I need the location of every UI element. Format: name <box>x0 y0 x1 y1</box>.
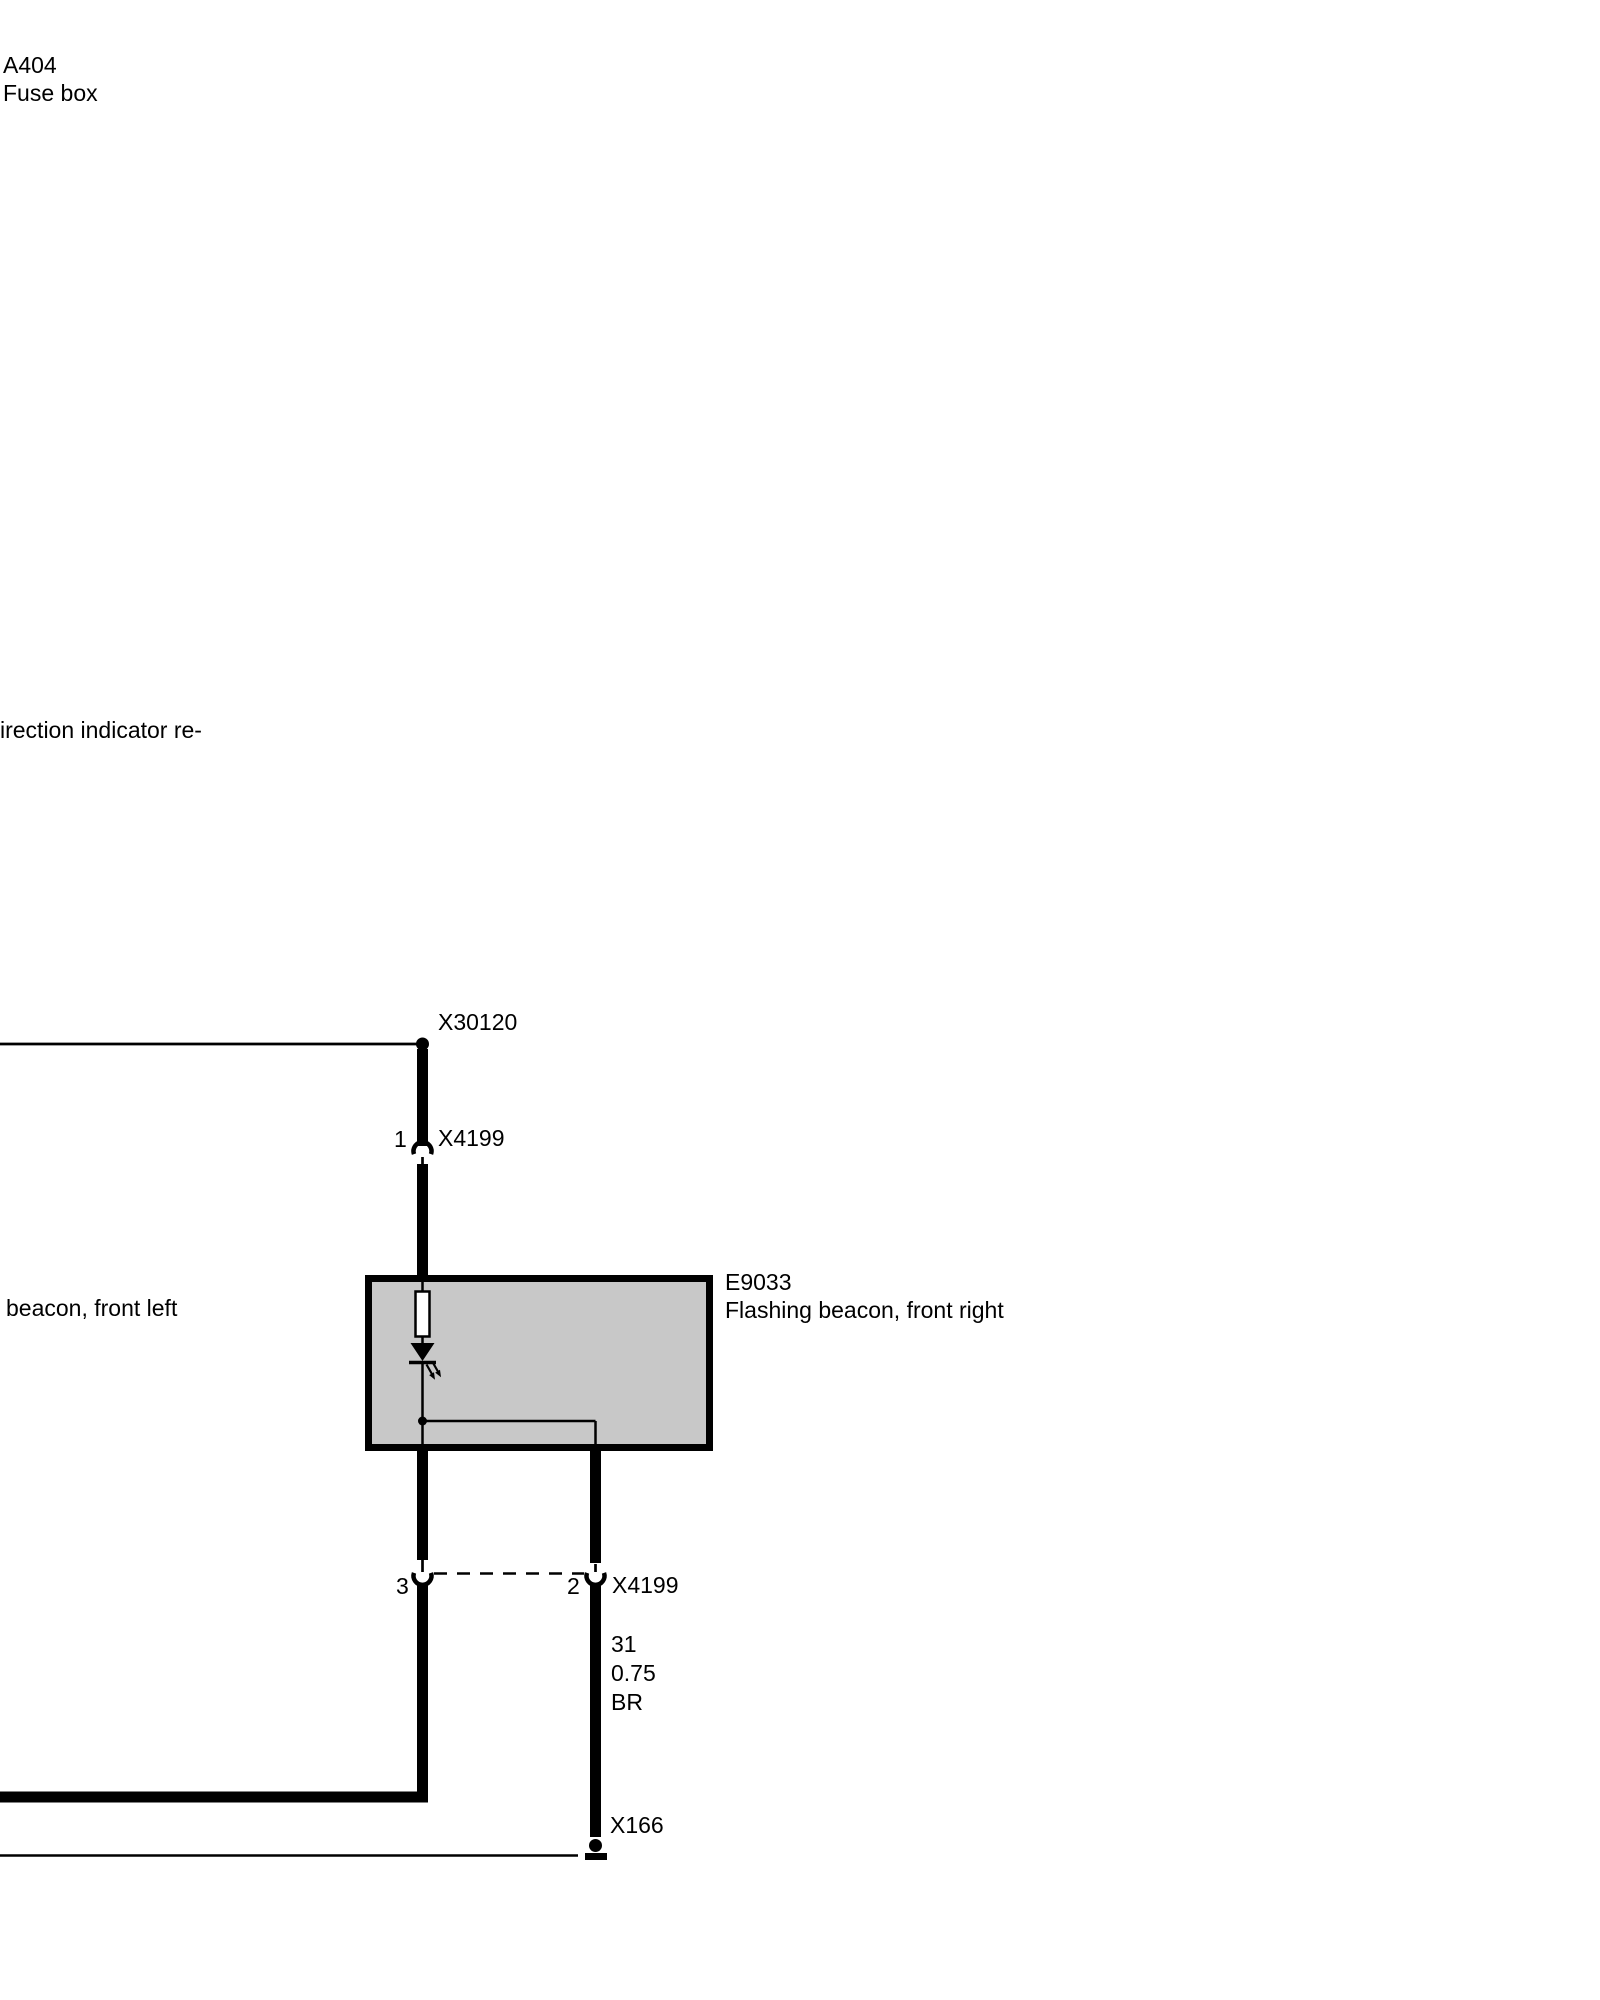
resistor-symbol <box>416 1292 430 1337</box>
wire-circuit-number: 31 <box>611 1630 656 1659</box>
wire-cross-section: 0.75 <box>611 1659 656 1688</box>
beacon-right-name: Flashing beacon, front right <box>725 1296 1004 1324</box>
plug-lower-pin2-number: 2 <box>567 1575 580 1598</box>
plug-lower-pin3-number: 3 <box>396 1575 409 1598</box>
fuse-box-label: A404 Fuse box <box>3 51 98 107</box>
schematic-linework <box>0 0 1600 2000</box>
fuse-box-name: Fuse box <box>3 79 98 107</box>
connector-socket-pin1-icon <box>414 1142 432 1154</box>
wiring-diagram-canvas: A404 Fuse box irection indicator re- X30… <box>0 0 1600 2000</box>
wire-pin3-return <box>0 1583 423 1797</box>
beacon-left-label: beacon, front left <box>6 1297 177 1320</box>
fuse-box-id: A404 <box>3 51 98 79</box>
wire-color-code: BR <box>611 1688 656 1717</box>
beacon-right-label: E9033 Flashing beacon, front right <box>725 1268 1004 1324</box>
x166-node-dot <box>589 1839 602 1852</box>
plug-lower-id-label: X4199 <box>612 1574 679 1597</box>
wire-spec-label: 31 0.75 BR <box>611 1630 656 1717</box>
beacon-right-id: E9033 <box>725 1268 1004 1296</box>
plug-upper-id-label: X4199 <box>438 1127 505 1150</box>
x30120-node-dot <box>416 1038 429 1051</box>
connector-x30120-label: X30120 <box>438 1011 517 1034</box>
cutoff-note-label: irection indicator re- <box>0 719 202 742</box>
ground-x166-label: X166 <box>610 1814 664 1837</box>
plug-upper-pin-number: 1 <box>394 1128 407 1151</box>
